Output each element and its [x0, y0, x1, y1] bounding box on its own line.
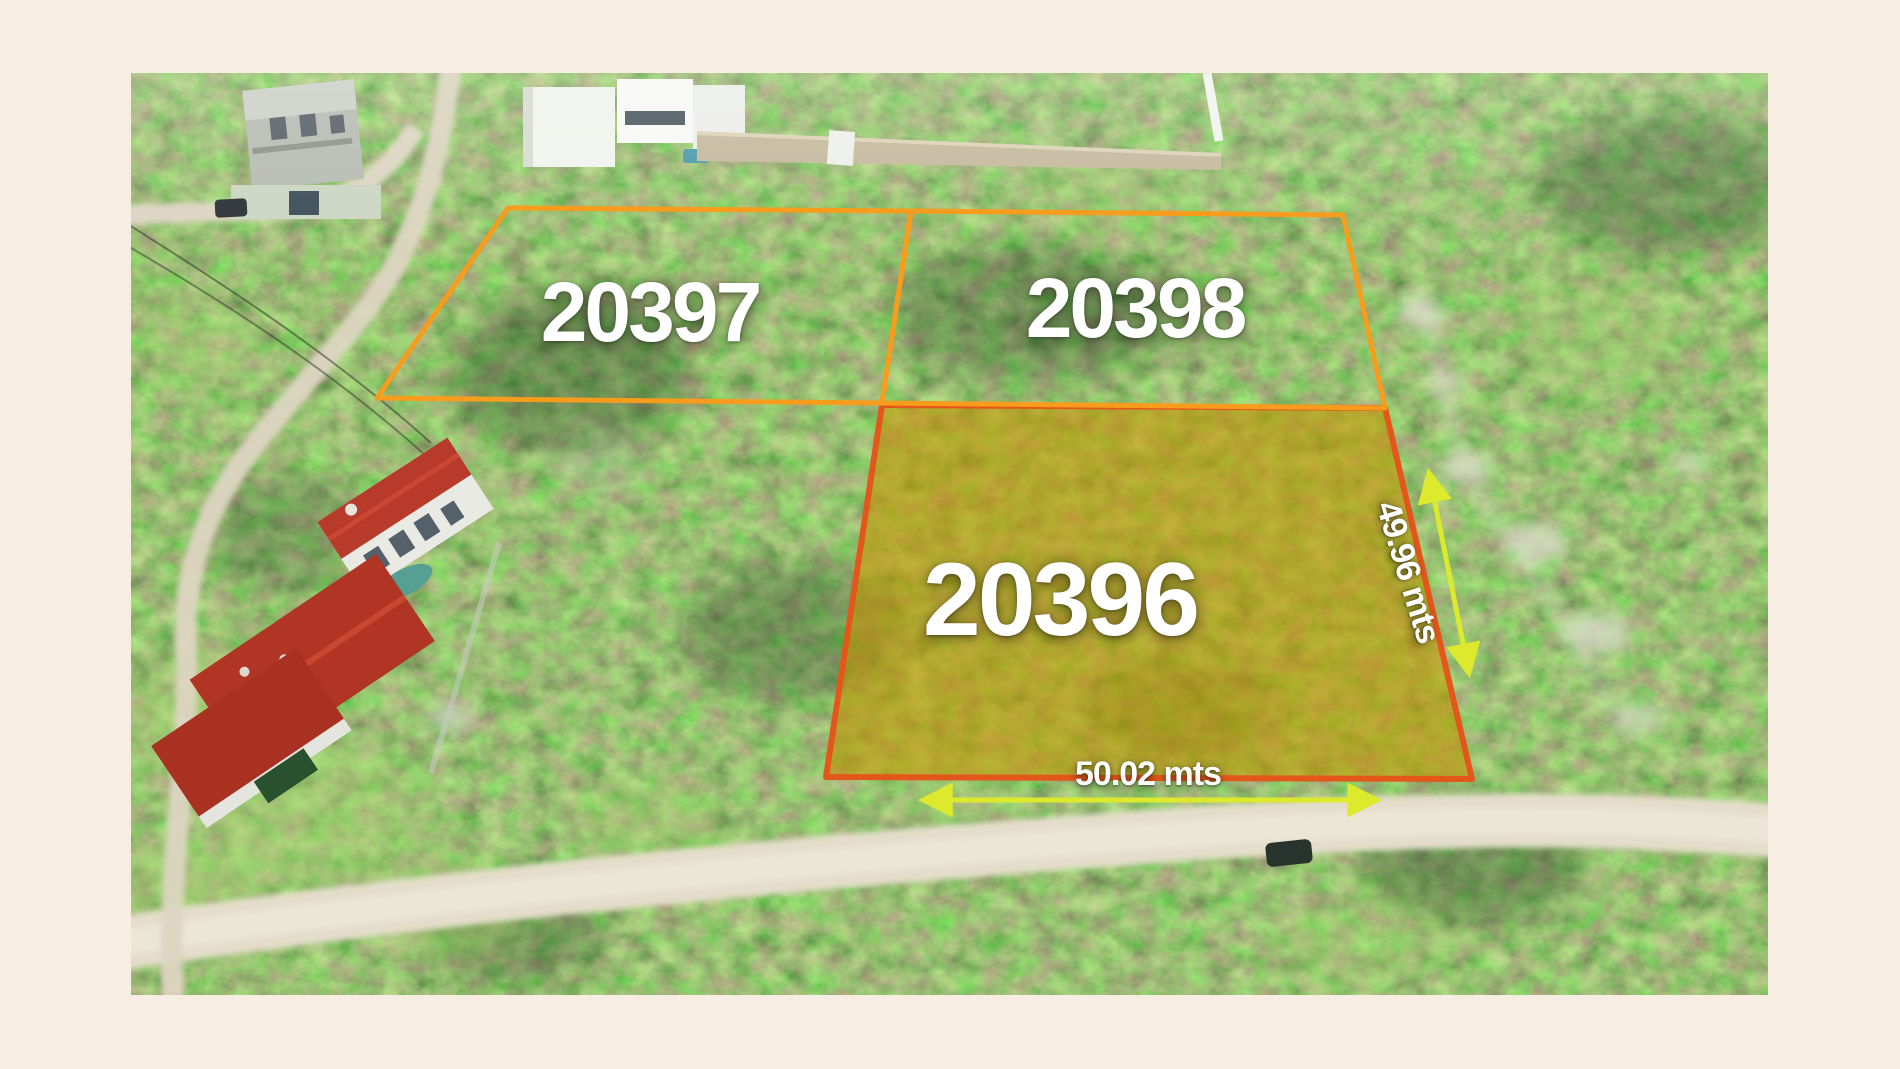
lot-20396-label: 20396 [923, 548, 1197, 652]
width-measurement-label: 50.02 mts [1075, 757, 1221, 791]
page-background: 20397 20398 20396 49.96 mts 50.02 mts [0, 0, 1900, 1069]
lot-20397-label: 20397 [541, 270, 760, 354]
aerial-photo: 20397 20398 20396 49.96 mts 50.02 mts [131, 73, 1768, 995]
lot-20398-label: 20398 [1026, 266, 1245, 350]
aerial-photo-canvas [131, 73, 1768, 995]
